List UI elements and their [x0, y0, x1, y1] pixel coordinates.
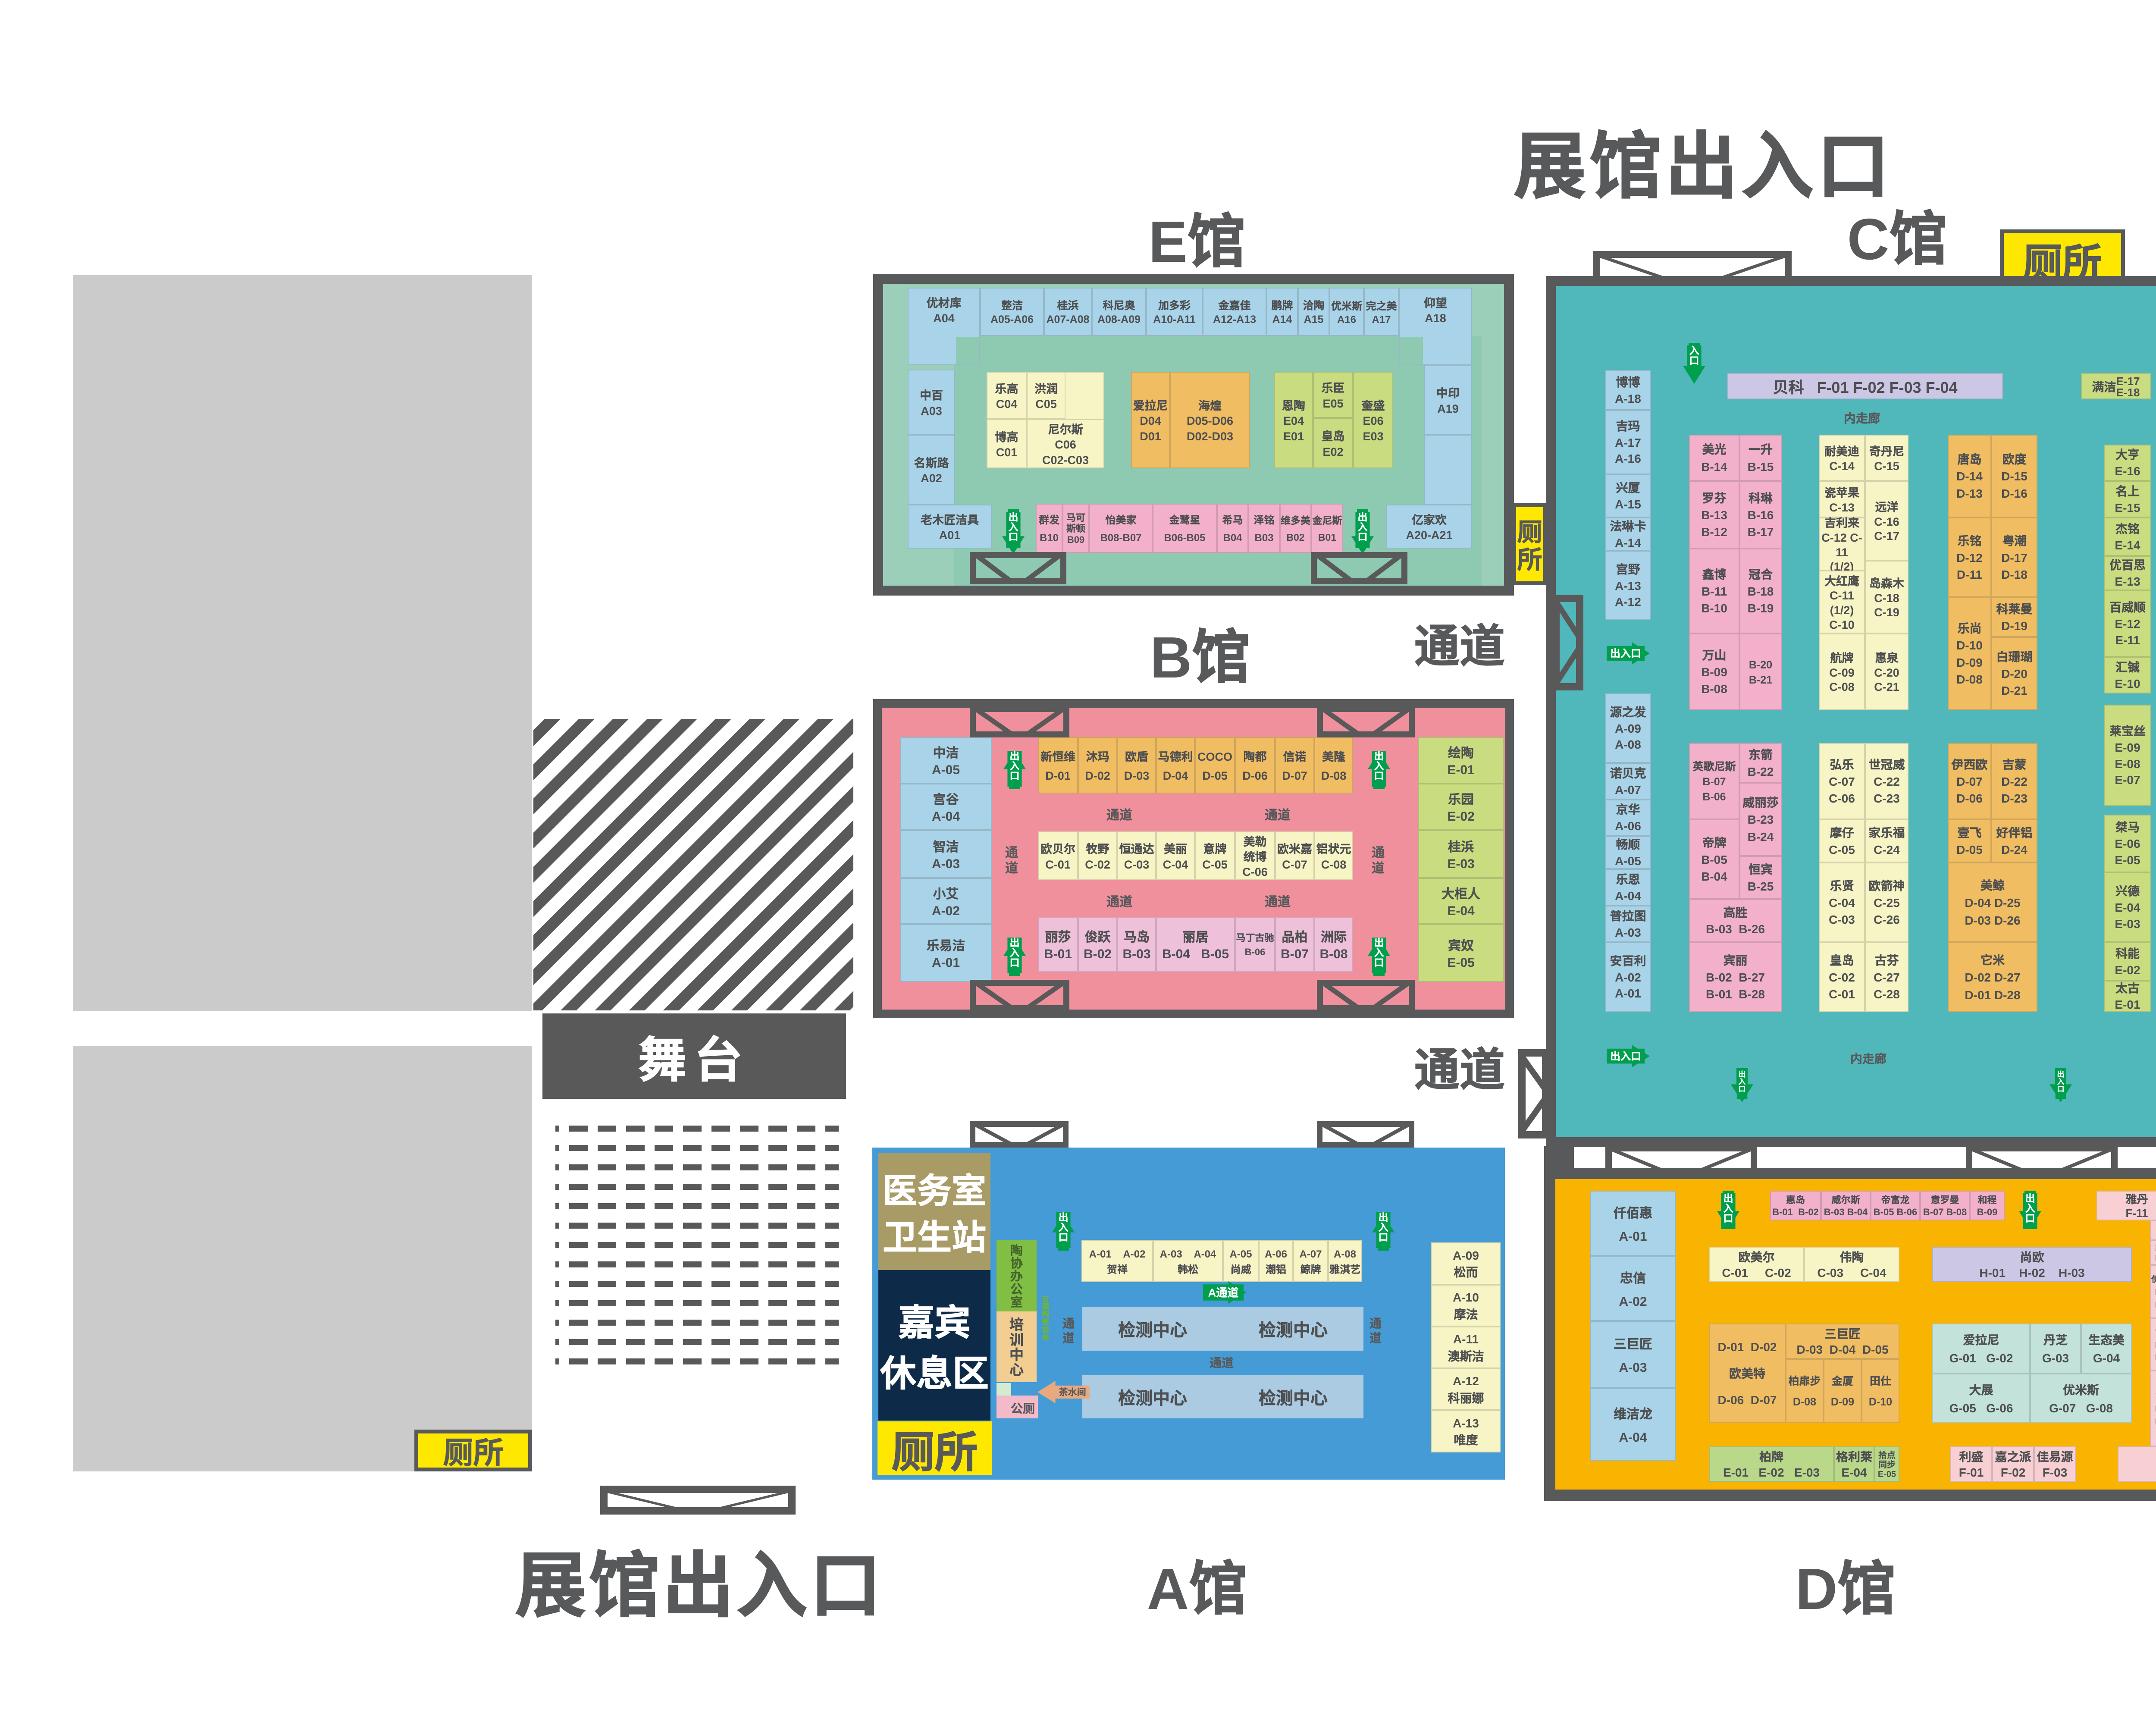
svg-text:口: 口 [1010, 768, 1020, 782]
svg-text:口: 口 [1010, 954, 1020, 969]
svg-text:口: 口 [1374, 768, 1384, 782]
svg-text:口: 口 [1059, 1229, 1069, 1244]
svg-text:出入口: 出入口 [1610, 1048, 1641, 1063]
svg-text:口: 口 [1379, 1229, 1388, 1244]
svg-text:口: 口 [2057, 1083, 2065, 1094]
svg-text:口: 口 [1724, 1210, 1733, 1225]
svg-text:口: 口 [1689, 352, 1699, 367]
svg-text:A通道: A通道 [1208, 1284, 1239, 1300]
svg-text:出入口: 出入口 [1610, 645, 1641, 660]
svg-text:口: 口 [1358, 529, 1368, 543]
svg-text:口: 口 [1374, 954, 1384, 969]
svg-text:口: 口 [1009, 529, 1018, 543]
svg-text:茶水间: 茶水间 [1059, 1386, 1086, 1399]
svg-text:口: 口 [2025, 1210, 2035, 1225]
svg-text:口: 口 [1739, 1083, 1746, 1094]
